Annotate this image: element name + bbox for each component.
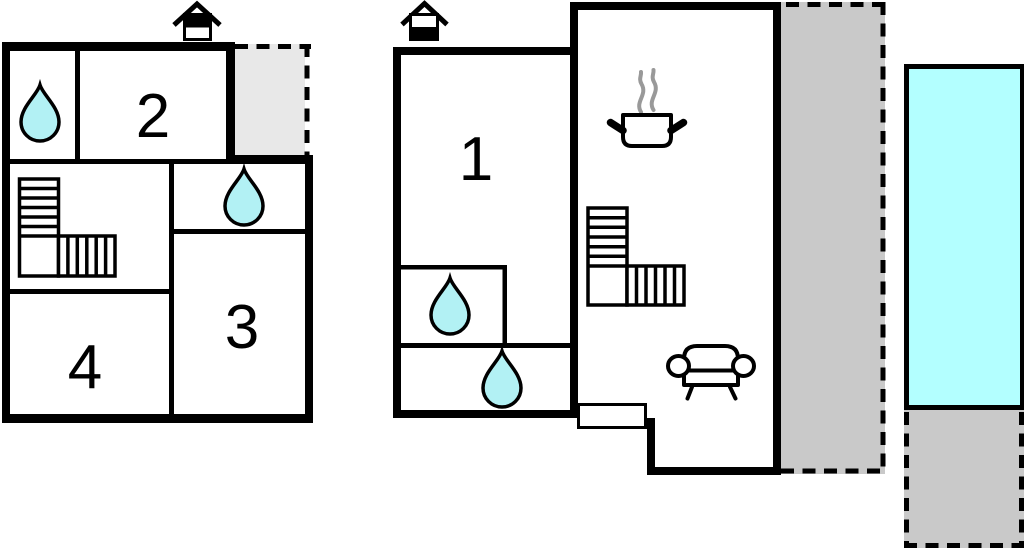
water-drop-icon	[225, 169, 263, 225]
sofa-legs	[688, 387, 736, 399]
wall-segment	[647, 467, 781, 475]
chimney-black-half	[183, 13, 212, 28]
sofa-armrest	[668, 356, 689, 376]
wall-segment	[647, 418, 655, 475]
fireplace-chimney-icon	[174, 4, 220, 40]
steam-icon	[652, 70, 656, 110]
wall-segment	[305, 157, 313, 423]
room-1-label: 1	[459, 125, 493, 194]
water-drop-icon	[21, 85, 59, 141]
wall-segment	[393, 47, 401, 418]
pool-area	[904, 67, 1024, 549]
wall-segment	[397, 265, 507, 270]
pot-body	[623, 115, 671, 146]
entrance-door	[579, 405, 646, 428]
room-2-label: 2	[136, 82, 170, 151]
wall-segment	[2, 414, 313, 423]
wall-segment	[397, 343, 574, 348]
wall-segment	[75, 49, 80, 160]
fireplace-chimney-icon	[402, 4, 447, 41]
staircase-icon	[20, 179, 116, 276]
sofa-icon	[668, 346, 754, 399]
cooking-pot-icon	[611, 70, 684, 146]
wall-segment	[393, 47, 578, 55]
wall-segment	[169, 159, 174, 418]
terrace-area	[781, 2, 885, 474]
ground-floor-plan: 1	[393, 2, 781, 475]
wall-segment	[570, 2, 781, 10]
wall-segment	[570, 2, 578, 418]
wall-segment	[226, 42, 235, 164]
sofa-armrest	[733, 356, 754, 376]
staircase-icon	[588, 208, 684, 305]
balcony-area	[235, 44, 311, 157]
water-drop-icon	[431, 278, 469, 334]
wall-segment	[393, 410, 579, 418]
chimney-black-half	[410, 27, 439, 41]
wall-segment	[169, 229, 308, 234]
floor-plan-canvas: 2 3 4	[0, 0, 1024, 551]
sofa-body	[684, 346, 738, 385]
balcony-fill	[235, 44, 305, 157]
pool-deck-fill	[904, 410, 1024, 548]
room-3-label: 3	[225, 293, 259, 362]
room-4-label: 4	[68, 333, 102, 402]
terrace-fill	[781, 2, 885, 474]
wall-segment	[503, 265, 508, 348]
wall-segment	[773, 2, 781, 475]
steam-icon	[639, 72, 643, 112]
water-drop-icon	[483, 351, 521, 407]
wall-segment	[8, 159, 308, 164]
upper-floor-plan: 2 3 4	[2, 4, 313, 423]
wall-segment	[2, 42, 10, 423]
wall-segment	[8, 289, 174, 294]
wall-segment	[2, 42, 235, 51]
floor-plan-page: 2 3 4	[0, 0, 1024, 551]
swimming-pool	[907, 67, 1023, 408]
